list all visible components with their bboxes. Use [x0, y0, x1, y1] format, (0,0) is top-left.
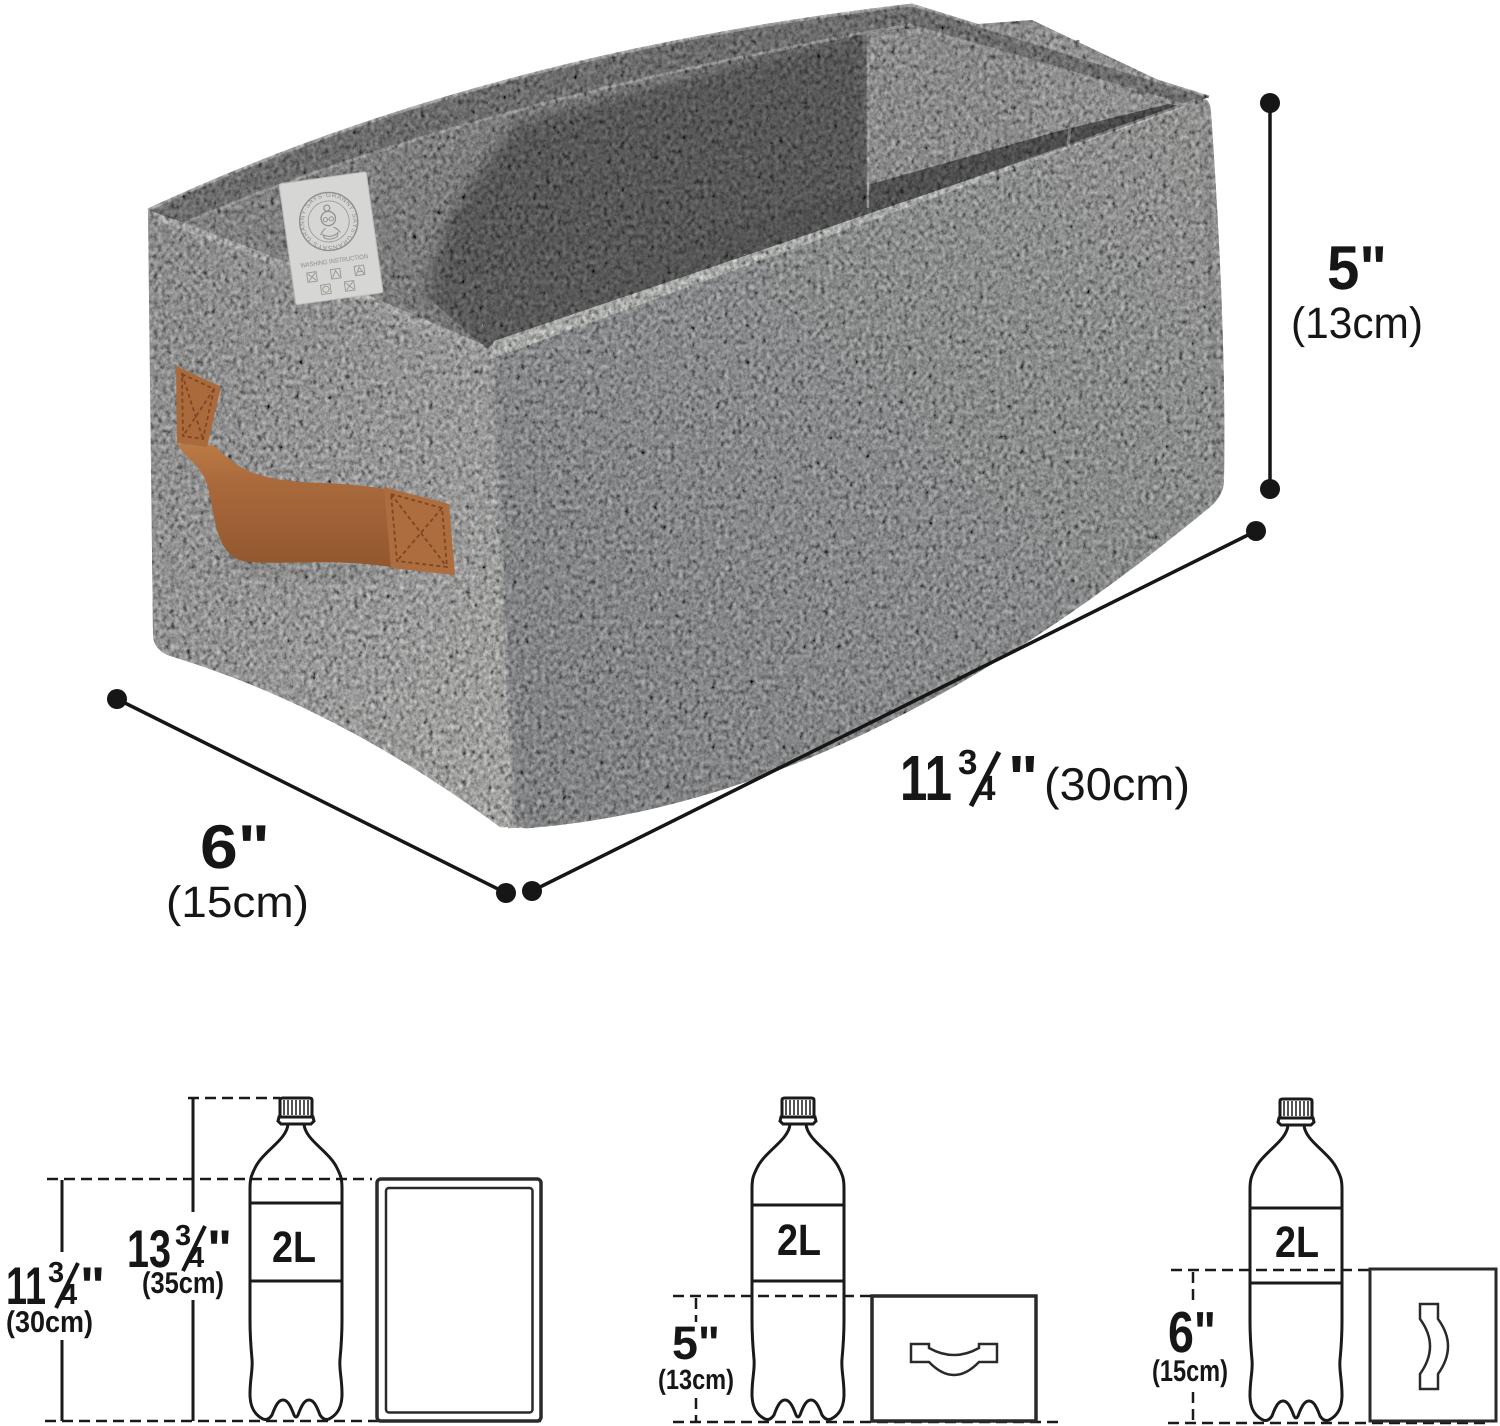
- svg-text:4: 4: [976, 769, 996, 808]
- svg-text:(13cm): (13cm): [1291, 299, 1423, 348]
- svg-text:(13cm): (13cm): [658, 1364, 734, 1395]
- svg-text:5": 5": [1327, 234, 1387, 303]
- svg-text:": ": [1008, 742, 1038, 814]
- svg-text:6": 6": [200, 813, 270, 882]
- svg-text:(35cm): (35cm): [142, 1267, 224, 1300]
- svg-text:2L: 2L: [777, 1216, 821, 1265]
- svg-text:2L: 2L: [272, 1223, 316, 1272]
- svg-text:(30cm): (30cm): [6, 1306, 93, 1339]
- svg-text:(30cm): (30cm): [1044, 758, 1190, 810]
- svg-text:3: 3: [958, 743, 977, 782]
- svg-text:11: 11: [900, 742, 952, 814]
- svg-text:2L: 2L: [1275, 1218, 1319, 1267]
- svg-text:(15cm): (15cm): [166, 878, 309, 927]
- svg-text:5": 5": [672, 1316, 720, 1369]
- svg-text:(15cm): (15cm): [1152, 1355, 1228, 1388]
